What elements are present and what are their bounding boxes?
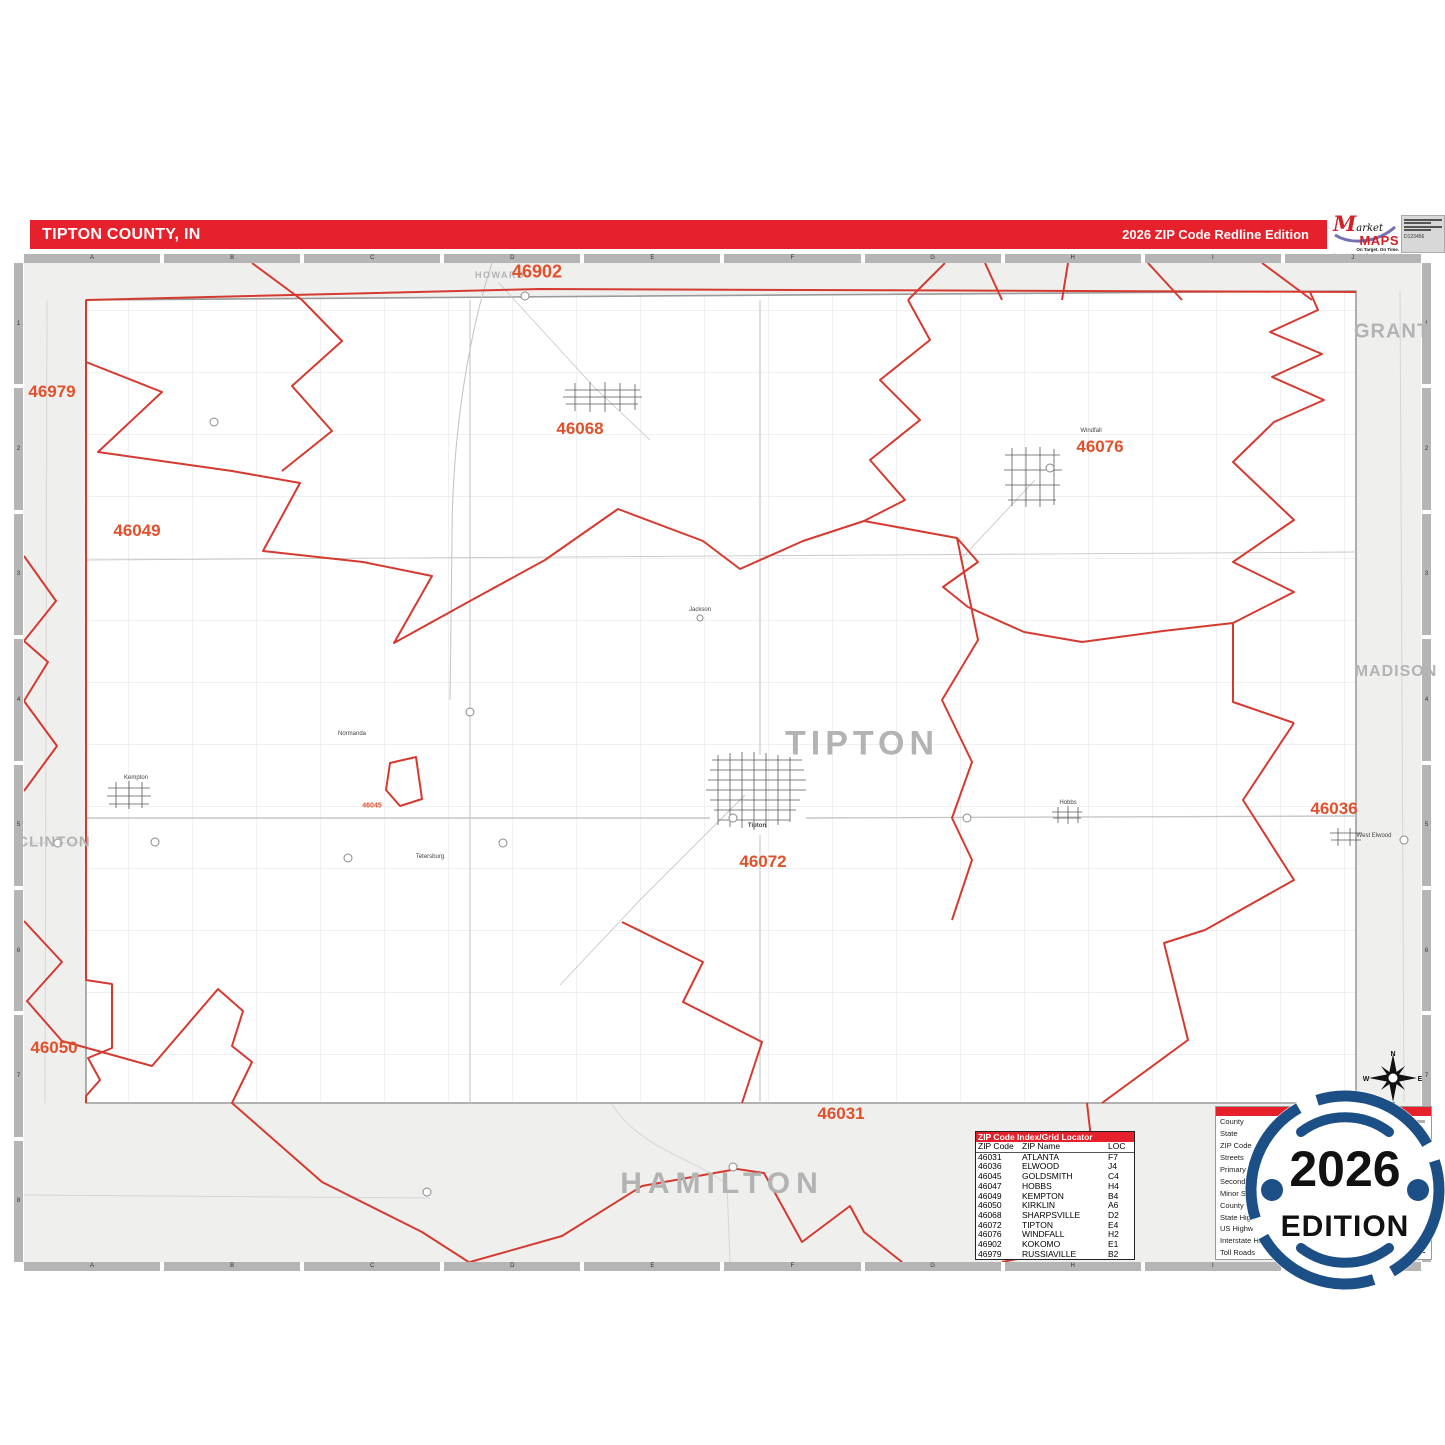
grid-col-label: H [1005, 254, 1141, 263]
zip-label-46036: 46036 [1310, 799, 1357, 819]
zip-label-46031: 46031 [817, 1104, 864, 1124]
grid-row-label: 7 [14, 1015, 23, 1136]
town-label-windfall: Windfall [1080, 428, 1101, 434]
county-label-clinton: CLINTON [17, 834, 90, 851]
compass-e: E [1418, 1076, 1423, 1083]
grid-row-label: 6 [1422, 890, 1431, 1011]
edition-badge: 2026 EDITION [1243, 1088, 1445, 1292]
map-canvas [24, 263, 1421, 1262]
logo-art: Market MAPS On Target. On Time. America'… [1333, 215, 1399, 253]
grid-col-label: I [1145, 254, 1281, 263]
grid-row-label: 3 [1422, 514, 1431, 635]
town-label-kempton: Kempton [124, 775, 148, 781]
header-bar: TIPTON COUNTY, IN 2026 ZIP Code Redline … [30, 220, 1327, 249]
grid-row-label: 4 [14, 639, 23, 760]
contact-line [1404, 222, 1431, 224]
zip-label-46068: 46068 [556, 419, 603, 439]
town-label-tetersburg: Tetersburg [416, 854, 444, 860]
col-zip-code: ZIP Code [976, 1142, 1020, 1152]
zip-label-46050: 46050 [30, 1038, 77, 1058]
marketmaps-logo: Market MAPS On Target. On Time. America'… [1333, 215, 1445, 253]
county-label-hamilton: HAMILTON [620, 1167, 824, 1201]
grid-row-label: 2 [1422, 388, 1431, 509]
town-label-hobbs: Hobbs [1059, 800, 1076, 806]
grid-col-label: A [24, 1262, 160, 1271]
grid-col-label: A [24, 254, 160, 263]
grid-col-label: B [164, 254, 300, 263]
grid-col-label: E [584, 1262, 720, 1271]
zip-label-46979: 46979 [28, 382, 75, 402]
town-label-normanda: Normanda [338, 731, 366, 737]
edition-subtitle: 2026 ZIP Code Redline Edition [1122, 227, 1327, 242]
legend-label: State [1220, 1129, 1238, 1138]
road-grid [86, 291, 1356, 1103]
logo-m: M [1333, 211, 1356, 236]
col-zip-name: ZIP Name [1020, 1142, 1106, 1152]
town-label-tipton: Tipton [748, 823, 766, 829]
cell-zip: 46979 [976, 1250, 1020, 1260]
zip-label-46902: 46902 [512, 262, 562, 283]
grid-col-label: F [724, 1262, 860, 1271]
legend-label: Streets [1220, 1153, 1244, 1162]
grid-row-label: 5 [1422, 765, 1431, 886]
page-title: TIPTON COUNTY, IN [30, 226, 201, 244]
town-label-jackson: Jackson [689, 607, 711, 613]
cell-name: RUSSIAVILLE [1020, 1250, 1106, 1260]
grid-col-label: C [304, 254, 440, 263]
grid-row-label: 6 [14, 890, 23, 1011]
contact-line [1404, 226, 1442, 228]
map-sheet: TIPTON COUNTY, IN 2026 ZIP Code Redline … [0, 0, 1445, 1445]
zip-label-46072: 46072 [739, 852, 786, 872]
badge-right-dot [1407, 1179, 1429, 1201]
zip-label-46076: 46076 [1076, 437, 1123, 457]
grid-col-label: D [444, 1262, 580, 1271]
badge-year: 2026 [1289, 1141, 1400, 1197]
county-label-tipton: TIPTON [785, 725, 939, 764]
town-label-west-elwood: West Elwood [1357, 833, 1392, 839]
grid-col-label: H [1005, 1262, 1141, 1271]
grid-col-label: J [1285, 254, 1421, 263]
grid-row-label: 5 [14, 765, 23, 886]
logo-tagline: On Target. On Time. [1333, 247, 1399, 252]
grid-col-label: F [724, 254, 860, 263]
logo-code: D123456 [1404, 234, 1442, 240]
legend-label: County [1220, 1117, 1244, 1126]
grid-ruler-left: 1 2 3 4 5 6 7 8 [14, 263, 23, 1262]
grid-row-label: 4 [1422, 639, 1431, 760]
compass-w: W [1363, 1076, 1370, 1083]
zip-index-header-row: ZIP Code ZIP Name LOC [976, 1142, 1134, 1152]
grid-row-label: 2 [14, 388, 23, 509]
zip-index-table: ZIP Code Index/Grid Locator ZIP Code ZIP… [975, 1131, 1135, 1260]
grid-row-label: 1 [14, 263, 23, 384]
grid-ruler-bottom: A B C D E F G H I J [24, 1262, 1421, 1271]
logo-maps: MAPS [1333, 236, 1399, 245]
cell-loc: B2 [1106, 1250, 1134, 1260]
contact-line [1404, 229, 1431, 231]
table-row: 46979RUSSIAVILLEB2 [976, 1250, 1134, 1260]
grid-row-label: 8 [14, 1141, 23, 1262]
grid-col-label: C [304, 1262, 440, 1271]
grid-row-label: 3 [14, 514, 23, 635]
grid-col-label: B [164, 1262, 300, 1271]
contact-line [1404, 219, 1442, 221]
grid-col-label: G [865, 1262, 1001, 1271]
compass-n: N [1390, 1051, 1395, 1058]
zip-label-46045: 46045 [362, 803, 381, 810]
logo-contact-box: D123456 [1401, 215, 1445, 253]
grid-col-label: G [865, 254, 1001, 263]
badge-edition: EDITION [1281, 1210, 1410, 1243]
grid-ruler-top: A B C D E F G H I J [24, 254, 1421, 263]
zip-label-46049: 46049 [113, 521, 160, 541]
col-loc: LOC [1106, 1142, 1134, 1152]
county-label-madison: MADISON [1355, 663, 1438, 681]
badge-left-dot [1261, 1179, 1283, 1201]
county-label-grant: GRANT [1354, 321, 1430, 344]
grid-col-label: E [584, 254, 720, 263]
